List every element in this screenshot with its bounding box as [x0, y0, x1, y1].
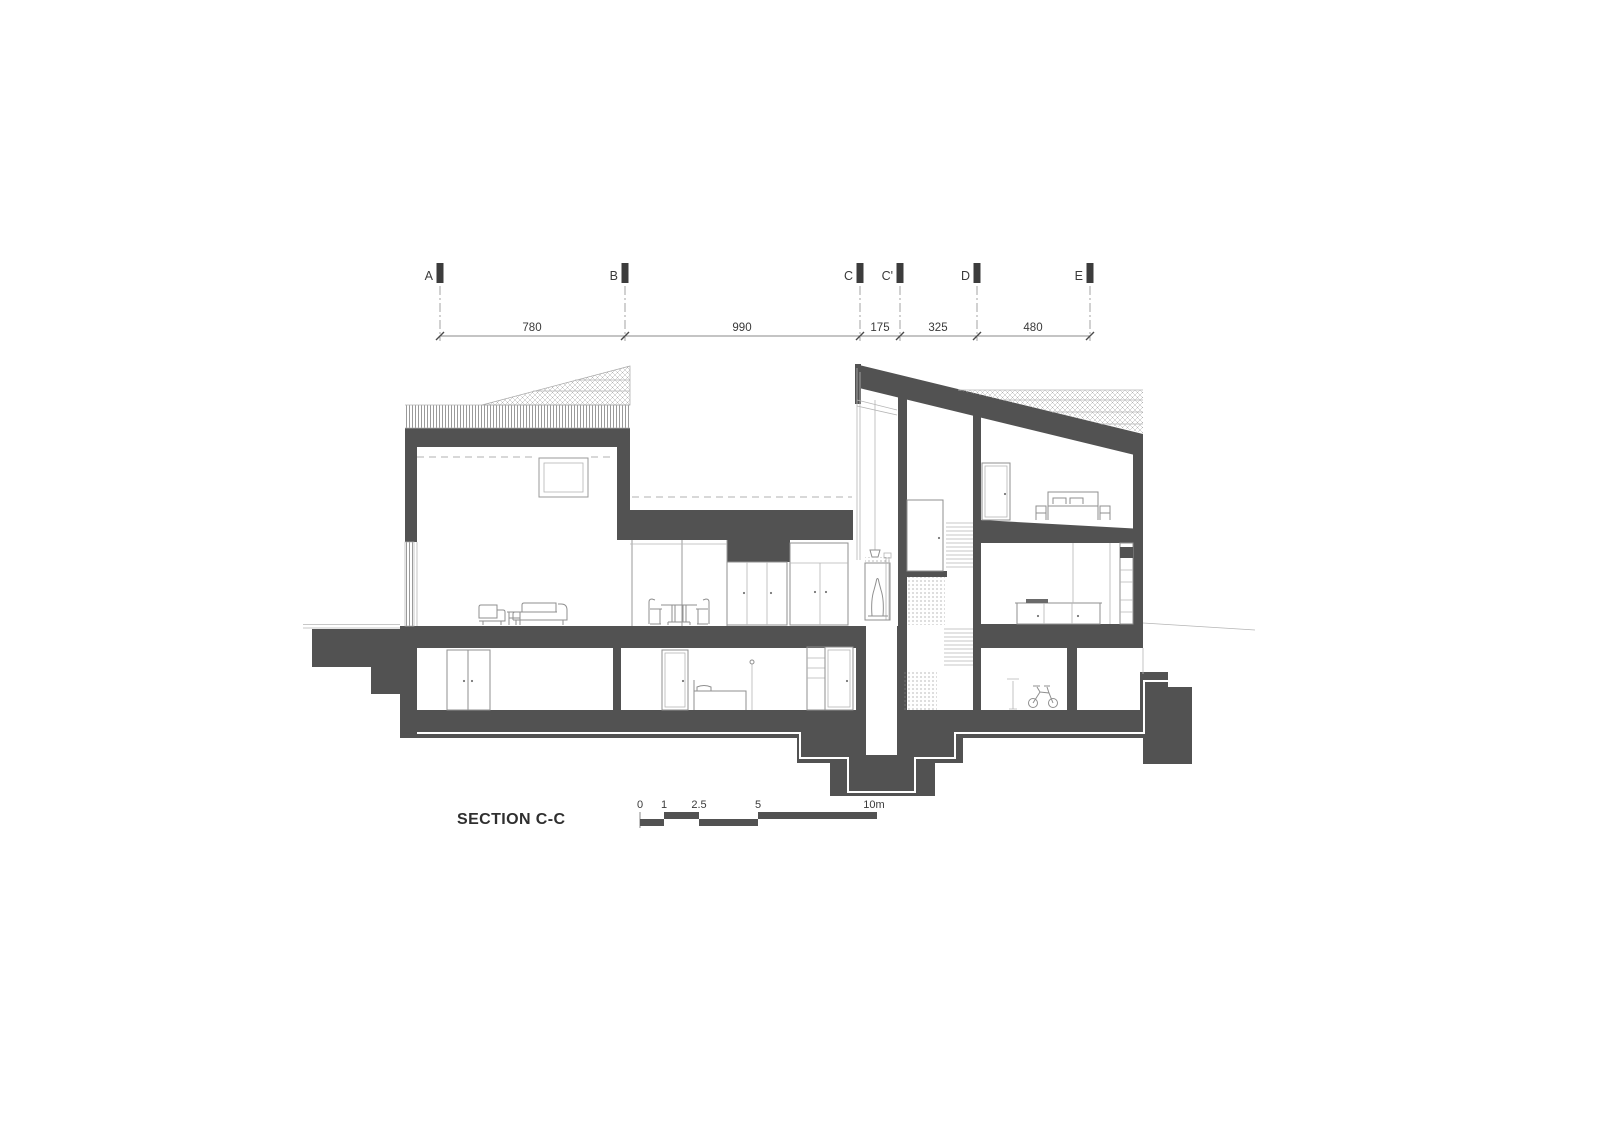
right-outer-wall	[1133, 452, 1143, 648]
stair-treads-basement	[944, 629, 975, 665]
grid-system: A B C C' D E 780 990 175 325 480	[425, 263, 1094, 341]
door-handle	[846, 680, 848, 682]
living-window	[539, 458, 588, 497]
kitchen-oven-box	[1120, 547, 1133, 558]
grade-line-right	[1143, 623, 1255, 630]
exercise-bike-frame	[1033, 686, 1053, 703]
grid-flag-a	[437, 263, 444, 283]
roof-gravel-band	[405, 405, 630, 428]
wardrobe-handle	[743, 592, 745, 594]
hall-cabinet	[790, 543, 848, 625]
section-drawing: A B C C' D E 780 990 175 325 480	[0, 0, 1600, 1131]
ground-slab-left	[400, 626, 858, 648]
kitchen	[1015, 543, 1133, 624]
bed-pillows	[1053, 498, 1083, 504]
cabinet-handle	[814, 591, 816, 593]
door-handle	[471, 680, 473, 682]
dimension-value-cd: 325	[928, 322, 947, 334]
closet-shelf-lines	[807, 658, 825, 678]
left-roof-slab	[405, 428, 630, 447]
door-handle	[682, 680, 684, 682]
link-roof-downstand	[727, 540, 790, 562]
stair-core	[903, 500, 975, 710]
scale-segment-5-10	[758, 812, 877, 819]
grid-label-c-prime: C'	[882, 269, 893, 283]
grid-flag-e	[1087, 263, 1094, 283]
drawing-title: SECTION C-C	[457, 811, 565, 828]
kitchen-counter	[1017, 603, 1100, 624]
bed-frame	[1048, 492, 1098, 520]
gym-equipment	[1007, 679, 1058, 709]
sofa	[513, 603, 567, 625]
basement	[447, 647, 1077, 710]
terrain-left	[312, 629, 400, 694]
counter-divisions	[1044, 603, 1072, 624]
grid-label-d: D	[961, 269, 970, 283]
dimension-value-ab: 780	[522, 322, 541, 334]
dining-glass-mullions	[632, 540, 727, 626]
tower-right-wall	[898, 396, 907, 710]
stair-hatch-mid	[907, 577, 945, 625]
nightstands	[1036, 506, 1110, 520]
ground-slab-right	[973, 624, 1143, 648]
grid-label-c: C	[844, 269, 853, 283]
basement-outer-wall-left	[400, 626, 417, 738]
elevator-shaft-void	[866, 648, 897, 755]
pendant-lamp	[870, 550, 880, 557]
scale-label-5: 5	[755, 799, 761, 811]
dimension-value-cc: 175	[870, 322, 889, 334]
scale-label-10m: 10m	[863, 799, 884, 811]
gym-lamp	[1007, 679, 1019, 709]
grid-flag-d	[974, 263, 981, 283]
kitchen-partition-lines	[1073, 543, 1110, 624]
scale-label-0: 0	[637, 799, 643, 811]
dimension-value-de: 480	[1023, 322, 1042, 334]
left-wall-window	[405, 542, 414, 626]
cabinet-shelf-lines	[1120, 570, 1133, 612]
link-roof-slab	[617, 510, 853, 540]
link-block	[617, 497, 853, 626]
armchair	[479, 605, 505, 625]
basement-bed	[694, 660, 754, 710]
grid-flag-c-prime	[897, 263, 904, 283]
stair-landing-door	[907, 500, 943, 571]
right-block-left-wall	[973, 415, 981, 710]
tower-glazing	[857, 368, 897, 560]
cabinet-handle	[825, 591, 827, 593]
left-block	[405, 366, 630, 626]
stair-treads-upper	[946, 523, 975, 567]
door-handle	[938, 537, 940, 539]
scale-bar: 0 1 2.5 5 10m	[637, 799, 885, 828]
grade-line-left	[303, 625, 400, 629]
bed-guest	[694, 680, 746, 710]
dining-set	[649, 599, 709, 625]
statue	[872, 579, 884, 617]
left-wall-upper	[405, 428, 417, 542]
door-handle	[463, 680, 465, 682]
dimension-value-bc: 990	[732, 322, 751, 334]
left-roof-hatch-wedge	[482, 366, 630, 405]
coffee-table	[507, 612, 522, 625]
scale-label-1: 1	[661, 799, 667, 811]
basement-closet	[807, 647, 825, 710]
bedroom-floor-slab	[981, 520, 1143, 543]
foundation-slab	[400, 710, 1148, 796]
dining-table	[661, 605, 697, 625]
dining-chair-left	[649, 599, 662, 624]
grid-label-e: E	[1075, 269, 1083, 283]
bed-master	[1036, 492, 1110, 520]
counter-handle	[1077, 615, 1079, 617]
living-window-inner	[544, 463, 583, 492]
grid-flag-c	[857, 263, 864, 283]
stair-hatch-basement	[903, 672, 937, 710]
scale-segment-0-1	[640, 819, 664, 826]
scale-segment-2.5-5	[699, 819, 758, 826]
left-block-right-wall	[617, 428, 630, 512]
lobby-door	[825, 647, 853, 710]
grid-label-a: A	[425, 269, 434, 283]
door-handle	[1004, 493, 1006, 495]
scale-segment-1-2.5	[664, 812, 699, 819]
bedroom-door	[982, 463, 1010, 520]
gym-right-wall	[1067, 648, 1077, 710]
wardrobe	[727, 562, 787, 625]
architectural-section-page: A B C C' D E 780 990 175 325 480	[0, 0, 1600, 1131]
basement-wall-1	[613, 648, 621, 710]
living-furniture	[479, 603, 567, 625]
stair-landing-slab	[907, 571, 947, 577]
cooktop	[1026, 599, 1048, 603]
basement-bedroom-door	[662, 650, 688, 710]
wardrobe-handle	[770, 592, 772, 594]
dining-chair-right	[696, 599, 709, 624]
floor-lamp-head	[750, 660, 754, 664]
case-rails	[886, 557, 889, 620]
grid-flag-b	[622, 263, 629, 283]
counter-handle	[1037, 615, 1039, 617]
scale-label-2-5: 2.5	[691, 799, 706, 811]
grid-label-b: B	[610, 269, 618, 283]
